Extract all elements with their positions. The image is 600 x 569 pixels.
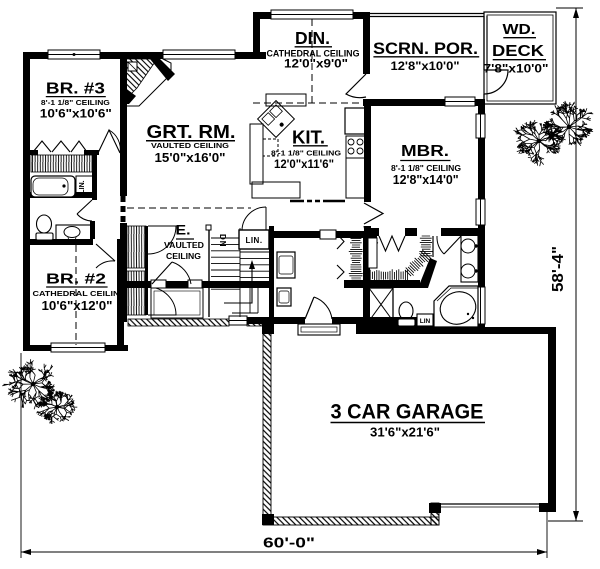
svg-text:DECK: DECK xyxy=(492,43,545,60)
svg-text:LIN.: LIN. xyxy=(79,180,86,193)
svg-text:10'6"x12'0": 10'6"x12'0" xyxy=(42,299,113,313)
svg-text:BR. #2: BR. #2 xyxy=(46,270,106,287)
svg-text:15'0"x16'0": 15'0"x16'0" xyxy=(155,150,226,165)
svg-text:VAULTED: VAULTED xyxy=(164,240,204,250)
svg-text:BR. #3: BR. #3 xyxy=(46,80,105,97)
svg-text:8'-1 1/8" CEILING: 8'-1 1/8" CEILING xyxy=(41,100,111,107)
svg-text:LIN.: LIN. xyxy=(245,236,262,245)
svg-text:MBR.: MBR. xyxy=(401,143,449,160)
svg-text:12'0"x9'0": 12'0"x9'0" xyxy=(284,59,348,71)
svg-text:DIN.: DIN. xyxy=(295,28,330,48)
svg-text:CEILING: CEILING xyxy=(166,251,201,261)
svg-text:10'6"x10'6": 10'6"x10'6" xyxy=(40,109,112,121)
svg-text:7'8"x10'0": 7'8"x10'0" xyxy=(484,62,549,76)
svg-text:VAULTED CEILING: VAULTED CEILING xyxy=(151,141,229,150)
svg-text:GRT. RM.: GRT. RM. xyxy=(147,122,236,142)
svg-text:E.: E. xyxy=(176,222,191,237)
svg-text:58'-4": 58'-4" xyxy=(550,246,567,292)
svg-text:KIT.: KIT. xyxy=(292,127,325,148)
svg-text:DN: DN xyxy=(218,234,227,248)
svg-text:12'8"x14'0": 12'8"x14'0" xyxy=(393,173,459,187)
svg-text:12'0"x11'6": 12'0"x11'6" xyxy=(274,157,334,171)
svg-text:60'-0": 60'-0" xyxy=(263,535,315,552)
svg-text:8'-1 1/8" CEILING: 8'-1 1/8" CEILING xyxy=(271,148,341,157)
svg-text:12'8"x10'0": 12'8"x10'0" xyxy=(391,59,460,73)
svg-text:3 CAR GARAGE: 3 CAR GARAGE xyxy=(331,401,484,424)
svg-text:SCRN. POR.: SCRN. POR. xyxy=(373,40,478,58)
svg-text:CATHEDRAL CEILING: CATHEDRAL CEILING xyxy=(33,289,127,298)
svg-text:LIN: LIN xyxy=(420,318,431,325)
svg-text:WD.: WD. xyxy=(503,22,536,38)
svg-text:CATHEDRAL CEILING: CATHEDRAL CEILING xyxy=(267,49,360,59)
svg-text:8'-1 1/8" CEILING: 8'-1 1/8" CEILING xyxy=(391,163,461,173)
svg-text:31'6"x21'6": 31'6"x21'6" xyxy=(370,425,440,440)
